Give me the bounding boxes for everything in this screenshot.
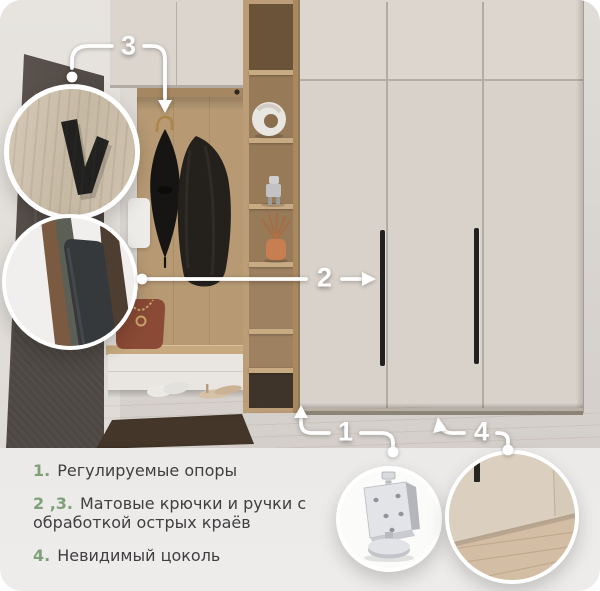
adjustable-leg-icon	[340, 470, 438, 568]
callout-number-3: 3	[121, 31, 135, 62]
shelf-compartment-top	[249, 4, 293, 70]
bracket-hole	[398, 512, 403, 516]
shelf-divider	[249, 204, 293, 209]
legend-number: 2 ,3.	[33, 494, 73, 513]
product-card: 1.Регулируемые опоры 2 ,3.Матовые крючки…	[0, 0, 600, 591]
shelf-divider	[249, 70, 293, 75]
bench-drawer-line	[108, 371, 245, 372]
callout-number-1: 1	[338, 417, 352, 448]
legend-text: Матовые крючки и ручки с	[80, 494, 306, 513]
legend-text: Регулируемые опоры	[57, 461, 237, 480]
bracket-hole	[383, 514, 388, 518]
umbrella-stand-closeup-circle	[2, 214, 138, 350]
shelf-divider	[249, 368, 293, 373]
wardrobe-door-seam	[482, 2, 484, 410]
card: 1.Регулируемые опоры 2 ,3.Матовые крючки…	[0, 0, 600, 591]
bench-shadow	[108, 390, 245, 398]
callout-number-2: 2	[317, 263, 331, 294]
leg-nut	[382, 472, 395, 479]
legend-number: 1.	[33, 461, 50, 480]
niche-shadow	[137, 97, 245, 111]
adjustable-support-closeup-circle	[336, 466, 442, 572]
legend-text: обработкой острых краёв	[33, 513, 251, 532]
upper-cabinet-divider	[176, 2, 177, 86]
legend-number: 4.	[33, 546, 50, 565]
leg-foot-top	[368, 539, 410, 555]
bracket-hole	[373, 498, 378, 502]
coat-niche-panel	[137, 97, 245, 349]
shelf-divider	[249, 262, 293, 267]
umbrella-stand-icon	[6, 218, 134, 346]
wardrobe-horizontal-seam	[300, 79, 583, 81]
shelf-divider	[249, 329, 293, 334]
shelf-compartment-lower	[249, 267, 293, 367]
handle-notch	[474, 456, 480, 482]
legend-text: Невидимый цоколь	[57, 546, 220, 565]
bench-drawer-front	[108, 354, 245, 390]
wardrobe-top-doors	[300, 0, 583, 80]
wood-grain	[9, 89, 135, 215]
bracket-plate	[364, 482, 412, 538]
callout-number-4: 4	[474, 417, 488, 448]
wardrobe-handle	[380, 230, 385, 366]
plinth-icon	[449, 454, 575, 580]
bracket-hole	[395, 494, 400, 498]
wardrobe-door-seam	[386, 2, 388, 410]
matte-hook-closeup-circle	[4, 84, 140, 220]
wardrobe-right-edge	[576, 0, 584, 413]
wardrobe-handle	[474, 228, 479, 364]
shelf-divider	[249, 138, 293, 143]
invisible-plinth-closeup-circle	[445, 450, 579, 584]
bracket-hole	[389, 528, 394, 532]
